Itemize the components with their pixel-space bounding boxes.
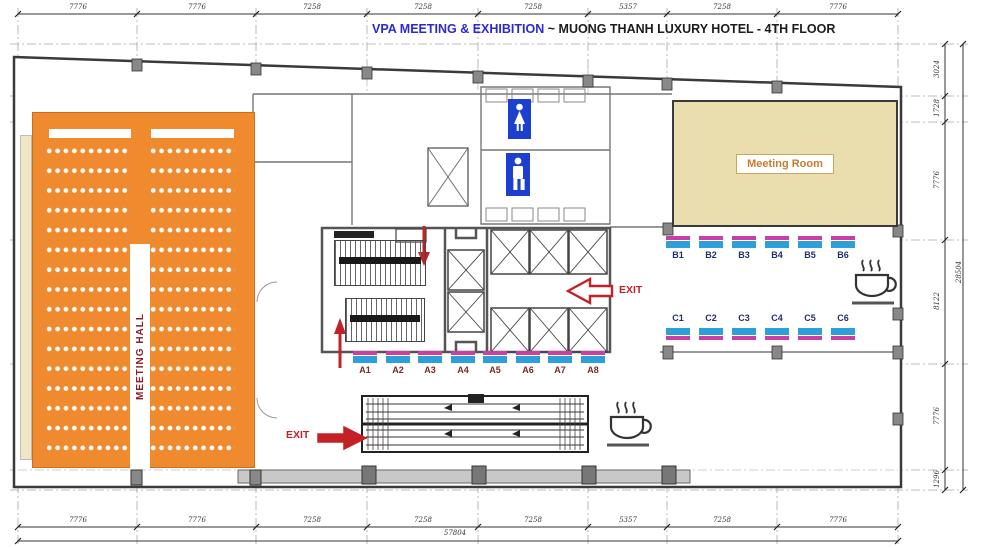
head-table (151, 129, 234, 138)
booth-label: B6 (831, 250, 855, 260)
booth-label: B1 (666, 250, 690, 260)
dimension-label: 7258 (290, 516, 334, 524)
plan-title: VPA MEETING & EXHIBITION ~ MUONG THANH L… (372, 22, 835, 36)
restroom-sign-woman (508, 99, 531, 139)
hall-side-strip (20, 135, 32, 460)
booth-b5 (798, 236, 822, 248)
seat-block-left (45, 141, 129, 459)
booth-label: A4 (451, 365, 475, 375)
event-title: VPA MEETING & EXHIBITION (372, 22, 544, 36)
booth-label: B2 (699, 250, 723, 260)
booth-label: B4 (765, 250, 789, 260)
booth-label: C2 (699, 313, 723, 323)
escalator-divider (350, 315, 420, 322)
booth-a2 (386, 351, 410, 363)
dimension-label: 7258 (290, 3, 334, 11)
meeting-hall-label: MEETING HALL (135, 313, 146, 400)
dimension-label: 7776 (933, 394, 941, 438)
dimension-label: 7776 (175, 516, 219, 524)
booth-a6 (516, 351, 540, 363)
booth-b2 (699, 236, 723, 248)
booth-label: C6 (831, 313, 855, 323)
stair-fixture-dark (334, 231, 374, 238)
dimension-label: 7258 (700, 3, 744, 11)
dimension-label: 5357 (606, 516, 650, 524)
booth-c6 (831, 328, 855, 340)
booth-b6 (831, 236, 855, 248)
booth-a3 (418, 351, 442, 363)
booth-label: B5 (798, 250, 822, 260)
booth-b4 (765, 236, 789, 248)
booth-a7 (548, 351, 572, 363)
dimension-label: 7776 (56, 3, 100, 11)
booth-label: A1 (353, 365, 377, 375)
booth-b1 (666, 236, 690, 248)
escalator-lower (345, 298, 425, 342)
dimension-label: 1296 (933, 457, 941, 501)
booth-label: A5 (483, 365, 507, 375)
dimension-label: 7776 (816, 516, 860, 524)
dimension-label: 1728 (933, 86, 941, 130)
booth-label: A7 (548, 365, 572, 375)
restroom-sign-man (506, 153, 530, 196)
bottom-escalators (362, 394, 588, 452)
booth-label: A2 (386, 365, 410, 375)
dimension-total-label: 28504 (955, 250, 963, 294)
booth-label: C3 (732, 313, 756, 323)
dimension-label: 7776 (175, 3, 219, 11)
dimension-label: 3024 (933, 47, 941, 91)
dimension-label: 7776 (56, 516, 100, 524)
seat-block-right (149, 141, 235, 459)
booth-label: A8 (581, 365, 605, 375)
booth-b3 (732, 236, 756, 248)
booth-c5 (798, 328, 822, 340)
booth-label: C1 (666, 313, 690, 323)
booth-c4 (765, 328, 789, 340)
dimension-total-label: 57804 (433, 529, 477, 537)
dimension-label: 7258 (511, 516, 555, 524)
head-table (49, 129, 131, 138)
booth-label: C5 (798, 313, 822, 323)
meeting-room: Meeting Room (672, 100, 898, 227)
booth-label: A6 (516, 365, 540, 375)
venue-title: MUONG THANH LUXURY HOTEL - 4TH FLOOR (559, 22, 836, 36)
booth-a5 (483, 351, 507, 363)
booth-label: A3 (418, 365, 442, 375)
dimension-label: 7258 (401, 516, 445, 524)
hall-aisle: MEETING HALL (130, 244, 150, 468)
title-separator: ~ (548, 22, 555, 36)
booth-c2 (699, 328, 723, 340)
booth-a1 (353, 351, 377, 363)
exit-label: EXIT (286, 429, 309, 441)
dimension-label: 7258 (700, 516, 744, 524)
escalator-divider (339, 257, 421, 264)
dimension-label: 5357 (606, 3, 650, 11)
meeting-room-label: Meeting Room (736, 154, 834, 174)
escalator-upper (334, 240, 426, 286)
booth-c1 (666, 328, 690, 340)
booth-label: C4 (765, 313, 789, 323)
floor-plan: VPA MEETING & EXHIBITION ~ MUONG THANH L… (0, 0, 989, 548)
dimension-label: 7776 (933, 158, 941, 202)
exit-label: EXIT (619, 284, 642, 296)
meeting-hall: MEETING HALL (32, 112, 255, 468)
booth-a8 (581, 351, 605, 363)
booth-c3 (732, 328, 756, 340)
booth-a4 (451, 351, 475, 363)
dimension-label: 7258 (401, 3, 445, 11)
dimension-label: 7258 (511, 3, 555, 11)
dimension-label: 8122 (933, 279, 941, 323)
booth-label: B3 (732, 250, 756, 260)
dimension-label: 7776 (816, 3, 860, 11)
